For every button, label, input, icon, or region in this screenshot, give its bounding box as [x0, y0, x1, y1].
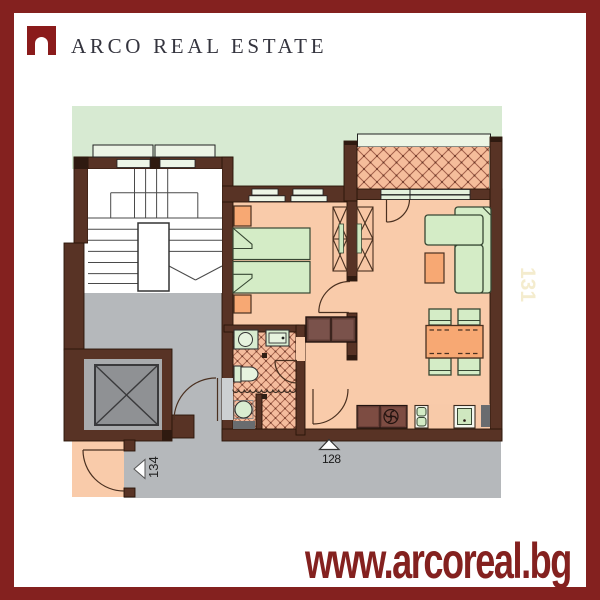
svg-text:128: 128	[322, 452, 341, 466]
svg-text:131: 131	[516, 267, 539, 302]
svg-text:134: 134	[146, 456, 161, 478]
